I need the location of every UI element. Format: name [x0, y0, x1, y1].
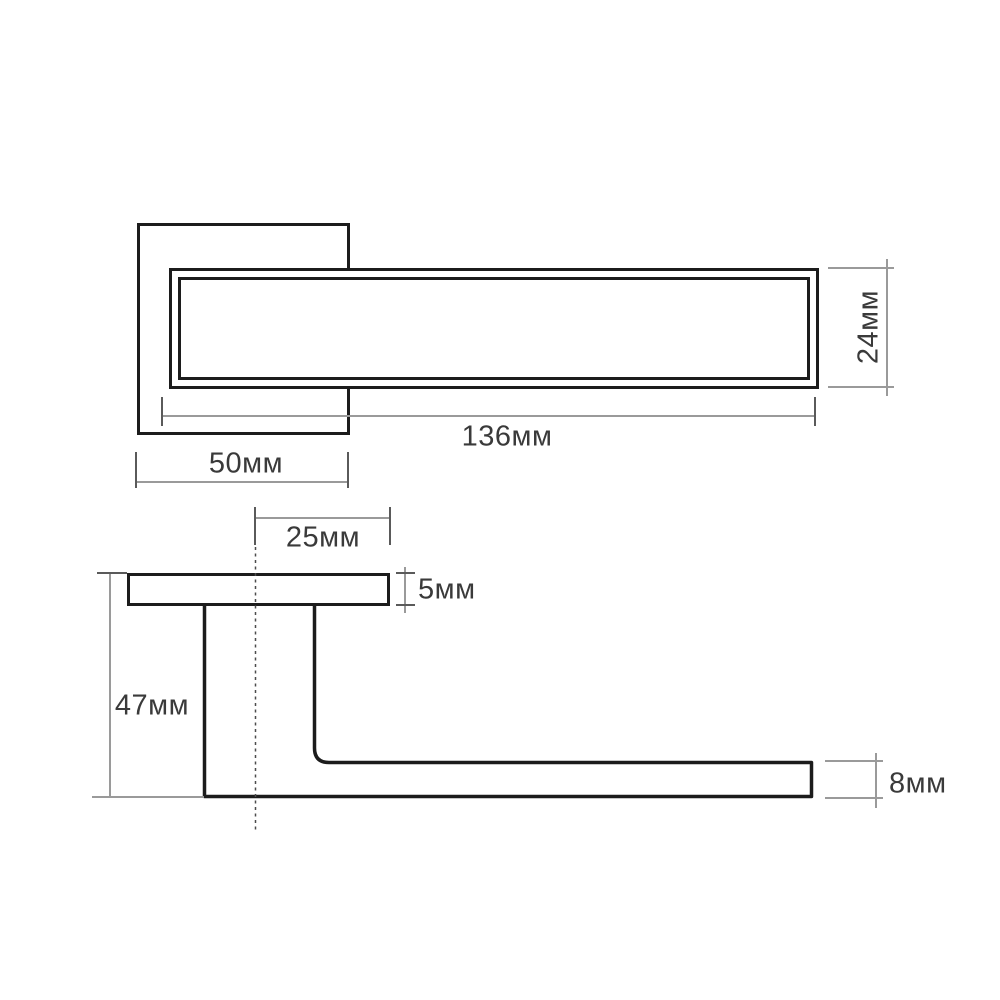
dim-tick — [389, 507, 391, 545]
dim-extension-line — [825, 760, 883, 762]
centerline-layer — [0, 0, 1000, 1000]
dim-tick — [396, 604, 415, 606]
dim-extension-line — [92, 796, 204, 798]
dim-line-lever-height — [886, 259, 888, 396]
dim-label-center-offset: 25мм — [286, 524, 360, 553]
dim-label-rose-thickness: 5мм — [418, 576, 476, 605]
dim-tick — [396, 572, 415, 574]
dim-tick — [347, 452, 349, 488]
dim-label-lever-length: 136мм — [462, 423, 553, 452]
dim-extension-line — [828, 386, 894, 388]
lever-bar-inner-edge — [178, 277, 810, 380]
lever-profile-layer — [0, 0, 1000, 1000]
dim-line-lever-length — [162, 415, 816, 417]
dim-tick — [97, 572, 127, 574]
dim-tick — [135, 452, 137, 488]
dim-tick — [814, 397, 816, 426]
dim-label-lever-thickness: 8мм — [889, 770, 947, 799]
dim-tick — [161, 397, 163, 426]
dim-extension-line — [825, 797, 883, 799]
dim-label-rose-width: 50мм — [209, 450, 283, 479]
dim-line-handle-depth — [109, 573, 111, 798]
dim-tick — [254, 507, 256, 545]
lever-profile-outline — [205, 604, 812, 797]
technical-drawing: 136мм 50мм 24мм 25мм 5мм — [0, 0, 1000, 1000]
rose-plate-side-view — [127, 573, 390, 606]
dim-label-lever-height: 24мм — [855, 290, 884, 364]
dim-extension-line — [828, 267, 894, 269]
dim-label-handle-depth: 47мм — [115, 692, 189, 721]
dim-line-rose-width — [136, 481, 349, 483]
dim-line-center-offset — [255, 517, 390, 519]
